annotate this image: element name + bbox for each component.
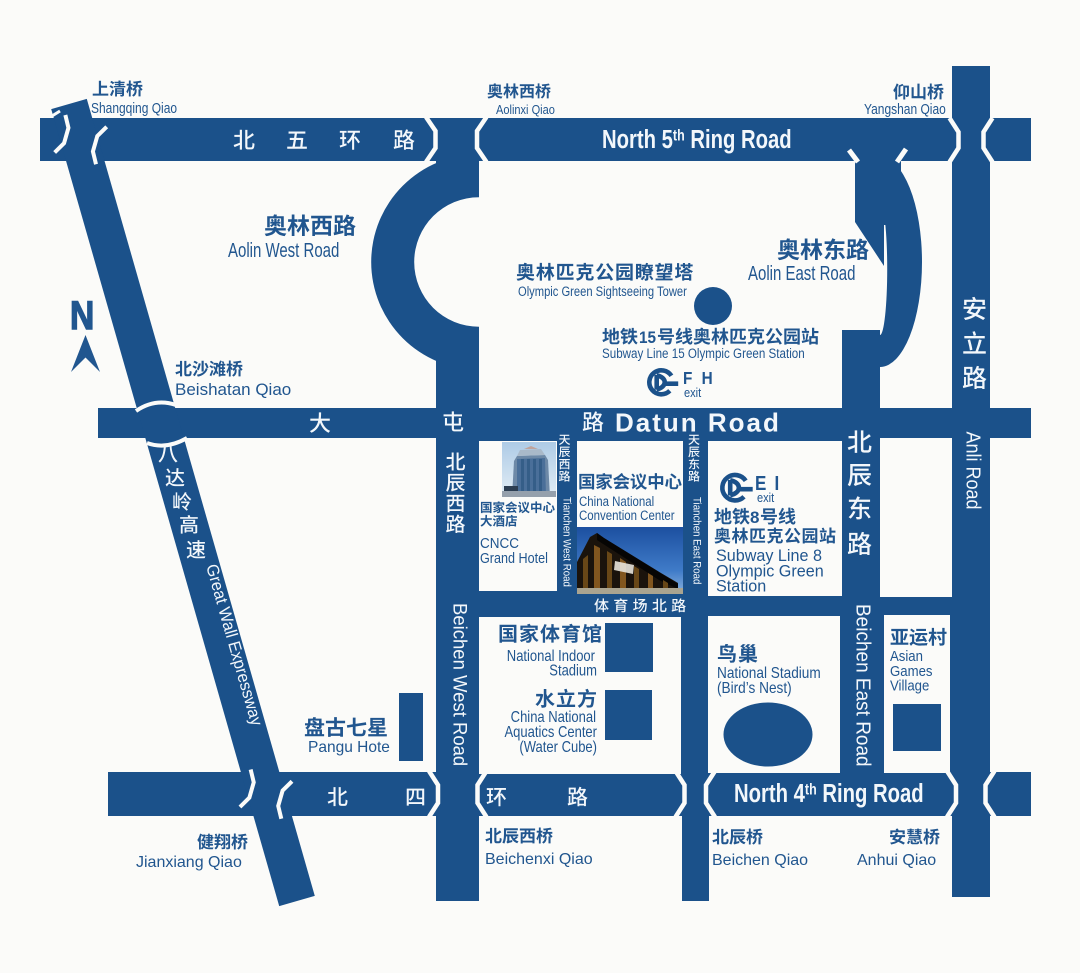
svg-text:Pangu Hote: Pangu Hote — [308, 739, 390, 756]
svg-text:Aolin West Road: Aolin West Road — [228, 239, 339, 262]
svg-text:Anli Road: Anli Road — [961, 432, 983, 510]
svg-text:Beichenxi Qiao: Beichenxi Qiao — [485, 851, 593, 868]
svg-text:Stadium: Stadium — [549, 663, 597, 680]
svg-text:Subway Line 15 Olympic Green S: Subway Line 15 Olympic Green Station — [602, 345, 805, 361]
svg-text:Tianchen East Road: Tianchen East Road — [690, 497, 702, 585]
svg-text:Beichen Qiao: Beichen Qiao — [712, 852, 808, 869]
svg-text:Aolinxi Qiao: Aolinxi Qiao — [496, 102, 555, 117]
svg-text:Tianchen West Road: Tianchen West Road — [560, 497, 572, 587]
svg-text:exit: exit — [684, 385, 702, 400]
svg-text:Datun Road: Datun Road — [615, 408, 781, 438]
svg-text:Station: Station — [716, 576, 766, 595]
svg-text:China National: China National — [579, 494, 654, 509]
svg-text:(Bird’s Nest): (Bird’s Nest) — [717, 680, 792, 697]
svg-text:Convention Center: Convention Center — [579, 508, 675, 523]
svg-text:exit: exit — [757, 490, 775, 505]
svg-text:Shangqing Qiao: Shangqing Qiao — [91, 100, 177, 117]
svg-text:Anhui Qiao: Anhui Qiao — [857, 852, 936, 869]
svg-text:Aolin East Road: Aolin East Road — [748, 262, 855, 285]
svg-text:Yangshan Qiao: Yangshan Qiao — [864, 101, 946, 118]
svg-text:North 5th Ring Road: North 5th Ring Road — [602, 125, 792, 154]
svg-text:Beichen East Road: Beichen East Road — [851, 604, 874, 767]
svg-text:Beichen West Road: Beichen West Road — [448, 603, 470, 766]
svg-text:Grand Hotel: Grand Hotel — [480, 549, 548, 566]
svg-text:Beishatan Qiao: Beishatan Qiao — [175, 380, 291, 399]
svg-text:Village: Village — [890, 677, 929, 694]
svg-text:N: N — [70, 293, 94, 337]
svg-text:North 4th Ring Road: North 4th Ring Road — [734, 779, 924, 808]
svg-text:Olympic Green Sightseeing Towe: Olympic Green Sightseeing Tower — [518, 284, 687, 299]
svg-text:(Water Cube): (Water Cube) — [519, 739, 597, 756]
svg-text:8: 8 — [750, 508, 759, 527]
svg-text:Jianxiang Qiao: Jianxiang Qiao — [136, 854, 242, 871]
